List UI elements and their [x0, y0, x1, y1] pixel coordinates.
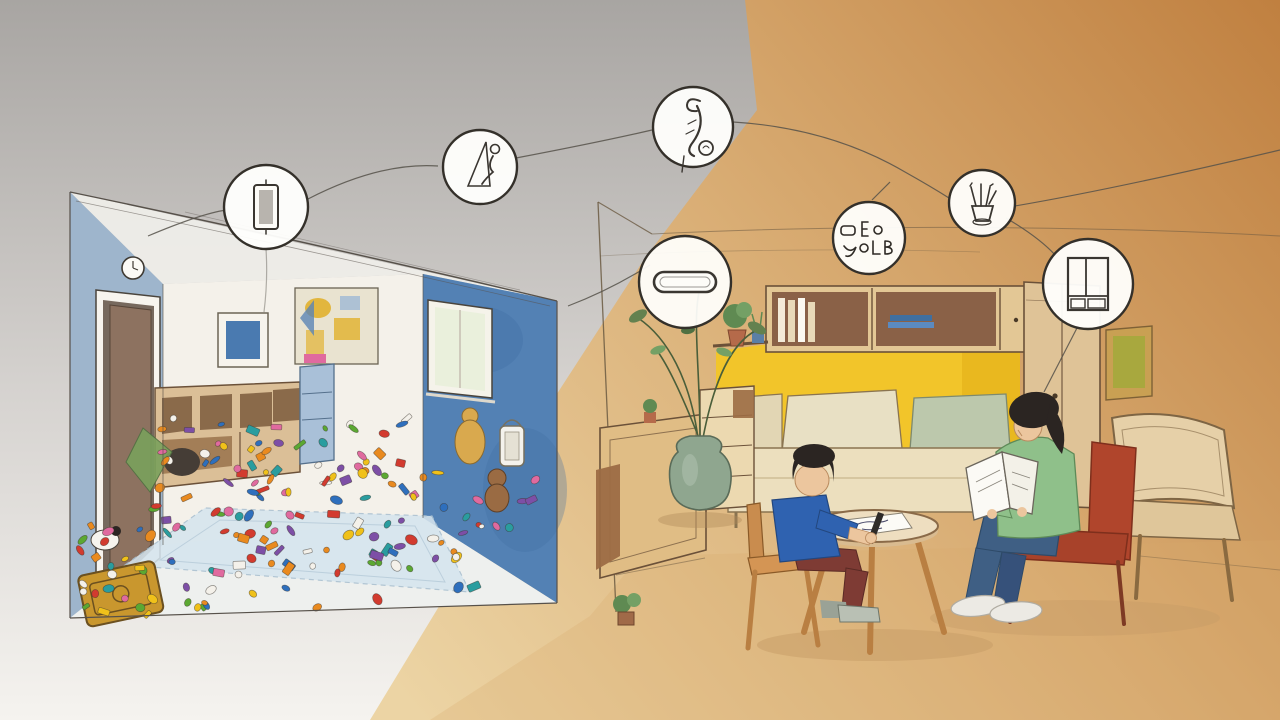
lantern	[500, 420, 524, 466]
badge-rolled-mat-icon	[224, 165, 308, 249]
green-vase	[670, 436, 732, 510]
toy-dot	[184, 427, 195, 433]
badge-wall-slot-icon	[639, 236, 731, 328]
kids-poster	[295, 288, 378, 364]
toy-dot	[395, 458, 406, 467]
boy-shoe	[838, 605, 880, 622]
toy-dot	[233, 561, 246, 569]
badge-wardrobe-icon	[1043, 239, 1133, 329]
toy-dot	[107, 562, 114, 570]
badge-slide-figure-icon	[443, 130, 517, 204]
blue-dresser	[300, 354, 334, 464]
table-shadow	[757, 629, 993, 661]
wall-shelf-unit	[766, 286, 1032, 352]
badge-letter-labels-icon	[833, 202, 905, 274]
watercolor-scene	[0, 0, 1280, 720]
boy-hand	[866, 533, 877, 544]
illustration-stage	[0, 0, 1280, 720]
woman-hand	[987, 509, 997, 519]
toy-dot	[271, 424, 282, 430]
woman-hand-2	[1017, 507, 1027, 517]
toy-dot	[286, 488, 291, 496]
vase-shadow	[658, 512, 742, 528]
toy-dot	[169, 559, 176, 565]
toy-dot	[213, 568, 225, 577]
framed-picture-blue	[218, 313, 268, 367]
window	[426, 300, 495, 402]
toy-dot	[80, 588, 87, 595]
framed-picture-olive	[1106, 326, 1152, 400]
toy-dot	[327, 510, 340, 518]
teddy-bear	[485, 469, 509, 512]
toy-dot	[309, 563, 316, 570]
toy-dot	[135, 565, 145, 571]
wall-clock	[122, 257, 144, 279]
boy-head	[795, 464, 829, 496]
badge-pencil-cup-icon	[949, 170, 1015, 236]
toy-dot	[256, 545, 267, 554]
toy-dot	[91, 589, 99, 598]
